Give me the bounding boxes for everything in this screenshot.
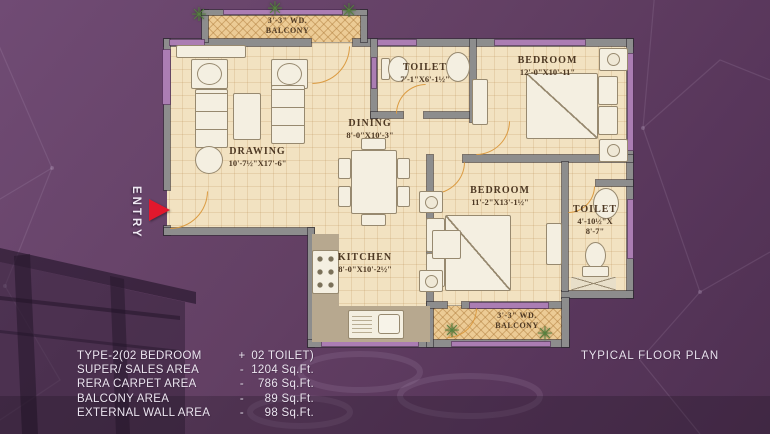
info-separator: - — [234, 392, 250, 406]
wall-segment — [424, 112, 476, 118]
room-label-balcony-top: 3'-3" WD. BALCONY — [245, 16, 330, 35]
bed-mattress — [527, 74, 597, 138]
window — [170, 40, 204, 45]
window — [163, 50, 170, 104]
info-row: RERA CARPET AREA - 786 Sq.Ft. — [77, 377, 314, 391]
room-dimension: 11'-2"X13'-1½" — [440, 197, 560, 207]
wc-base — [583, 267, 608, 276]
coffee-table — [234, 94, 260, 139]
room-name: BALCONY — [245, 26, 330, 36]
sofa — [272, 86, 304, 143]
info-row: BALCONY AREA - 89 Sq.Ft. — [77, 392, 314, 406]
room-name: BALCONY — [472, 321, 562, 331]
dresser — [547, 224, 561, 264]
fridge — [433, 231, 460, 258]
room-dimension: 10'-7½"X17'-6" — [210, 158, 305, 168]
info-value: 02 TOILET) — [250, 349, 314, 363]
wall-segment — [596, 180, 633, 186]
pillow — [599, 107, 617, 134]
window — [372, 58, 376, 88]
dining-chair — [362, 139, 385, 149]
info-label: TYPE-2(02 BEDROOM — [77, 349, 234, 363]
room-label-toilet1: TOILET 7'-1"X6'-1½" — [390, 62, 460, 84]
room-name: TOILET — [390, 62, 460, 74]
entry-label: ENTRY — [130, 186, 142, 240]
tv-console — [177, 46, 245, 57]
room-label-drawing: DRAWING 10'-7½"X17'-6" — [210, 146, 305, 168]
wc-tank — [382, 59, 389, 79]
floor-plan-poster: ✳ ✳ ✳ ✳ ✳ 3'-3" WD. BALCONY DRAWING 10'-… — [0, 0, 770, 434]
room-name: KITCHEN — [315, 252, 415, 264]
room-label-kitchen: KITCHEN 8'-0"X10'-2½" — [315, 252, 415, 274]
room-label-toilet2: TOILET 4'-10½"X 8'-7" — [566, 204, 624, 236]
dining-chair — [398, 159, 409, 178]
entry-arrow-icon — [149, 199, 170, 221]
dining-chair — [398, 187, 409, 206]
info-value: 1204 Sq.Ft. — [250, 363, 314, 377]
armchair — [192, 60, 227, 88]
info-value: 786 Sq.Ft. — [250, 377, 314, 391]
room-name: BEDROOM — [495, 55, 600, 67]
room-dimension: 8'-0"X10'-2½" — [315, 264, 415, 274]
info-separator: - — [234, 377, 250, 391]
nightstand — [420, 271, 442, 291]
info-separator: - — [234, 363, 250, 377]
plan-title: TYPICAL FLOOR PLAN — [581, 350, 719, 362]
wall-segment — [562, 291, 633, 298]
info-row: TYPE-2(02 BEDROOM + 02 TOILET) — [77, 349, 314, 363]
room-dimension: 4'-10½"X — [566, 216, 624, 226]
kitchen-sink — [349, 311, 403, 338]
dining-chair — [362, 215, 385, 225]
room-name: 3'-3" WD. — [245, 16, 330, 26]
room-dimension: 7'-1"X6'-1½" — [390, 74, 460, 84]
dining-table — [352, 151, 396, 213]
room-name: DRAWING — [210, 146, 305, 158]
room-name: BEDROOM — [440, 185, 560, 197]
shower-tray — [571, 277, 616, 290]
room-dimension: 8'-7" — [566, 226, 624, 236]
info-row: SUPER/ SALES AREA - 1204 Sq.Ft. — [77, 363, 314, 377]
dining-chair — [339, 187, 350, 206]
info-separator: - — [234, 406, 250, 420]
info-value: 89 Sq.Ft. — [250, 392, 314, 406]
nightstand — [420, 192, 442, 212]
window — [322, 342, 418, 346]
room-label-bedroom1: BEDROOM 12'-0"X10'-11" — [495, 55, 600, 77]
plant-icon: ✳ — [188, 4, 210, 26]
room-name: 3'-3" WD. — [472, 311, 562, 321]
pillow — [599, 77, 617, 104]
wc-bowl — [586, 243, 605, 268]
room-label-dining: DINING 8'-0"X10'-3" — [330, 118, 410, 140]
info-value: 98 Sq.Ft. — [250, 406, 314, 420]
plant-icon: ✳ — [338, 0, 360, 22]
info-label: EXTERNAL WALL AREA — [77, 406, 234, 420]
info-separator: + — [234, 349, 250, 363]
armchair — [272, 60, 307, 88]
room-label-bedroom2: BEDROOM 11'-2"X13'-1½" — [440, 185, 560, 207]
room-dimension: 12'-0"X10'-11" — [495, 67, 600, 77]
room-dimension: 8'-0"X10'-3" — [330, 130, 410, 140]
window — [495, 40, 585, 45]
plant-icon: ✳ — [441, 320, 463, 342]
wardrobe — [473, 80, 487, 124]
info-row: EXTERNAL WALL AREA - 98 Sq.Ft. — [77, 406, 314, 420]
nightstand — [600, 49, 627, 70]
nightstand — [600, 140, 627, 161]
area-info-panel: TYPE-2(02 BEDROOM + 02 TOILET) SUPER/ SA… — [77, 349, 314, 420]
room-name: DINING — [330, 118, 410, 130]
room-name: TOILET — [566, 204, 624, 216]
info-label: RERA CARPET AREA — [77, 377, 234, 391]
dining-chair — [339, 159, 350, 178]
window — [628, 200, 633, 258]
window — [378, 40, 416, 45]
room-label-balcony-bottom: 3'-3" WD. BALCONY — [472, 311, 562, 330]
wall-segment — [427, 302, 447, 308]
info-label: BALCONY AREA — [77, 392, 234, 406]
wall-segment — [562, 298, 569, 347]
sofa — [196, 90, 227, 147]
wall-segment — [164, 228, 314, 235]
info-label: SUPER/ SALES AREA — [77, 363, 234, 377]
window — [628, 54, 633, 150]
window — [470, 303, 548, 308]
